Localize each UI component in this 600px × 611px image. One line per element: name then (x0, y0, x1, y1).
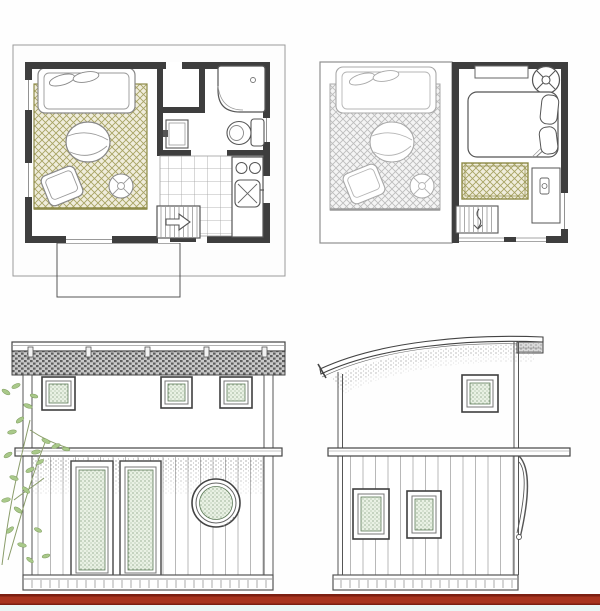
bathroom-wall (227, 150, 270, 156)
ground-strip (0, 605, 600, 611)
sink-basin (236, 163, 247, 174)
side-window-2 (407, 491, 441, 538)
daybed-sofa (38, 68, 135, 113)
ghost-sofa (336, 67, 436, 113)
staircase (456, 206, 498, 233)
faucet (163, 130, 168, 137)
tiny-house-plan-drawing (0, 0, 600, 611)
base-board (23, 575, 273, 590)
side-elevation (318, 336, 570, 590)
bathroom-wall (199, 62, 205, 113)
staircase (157, 206, 200, 238)
side-window-1 (353, 489, 389, 539)
side-stool (109, 174, 133, 198)
wardrobe-shelf (475, 66, 528, 78)
loft-bedroom (452, 62, 568, 243)
square-window-2 (161, 377, 192, 408)
roof-hatch (330, 345, 535, 394)
corner-post-right (264, 375, 273, 575)
pillow (539, 94, 559, 125)
ghost-living-room-below (320, 62, 452, 243)
drawing-canvas (0, 0, 600, 611)
closet-wall (157, 62, 163, 113)
ground-top-line (0, 594, 600, 597)
accent-rug (462, 163, 528, 199)
ghost-stool (410, 174, 434, 198)
toilet (227, 119, 264, 146)
cooktop (235, 180, 264, 207)
upper-window (462, 375, 498, 412)
first-floor-plan (13, 45, 285, 297)
base-board (333, 575, 518, 590)
front-elevation (1, 342, 285, 590)
desk-cabinet (532, 168, 560, 223)
round-coffee-table (66, 122, 110, 162)
ceiling-fan (533, 67, 560, 94)
ground-line (0, 597, 600, 604)
vanity-sink (163, 120, 188, 148)
pillow (538, 126, 558, 155)
floor-band (328, 448, 570, 456)
ghost-table (370, 122, 414, 162)
loft-floor-plan (320, 62, 568, 243)
bed (468, 92, 559, 157)
ground (0, 594, 600, 611)
corner-shower (218, 66, 265, 112)
porthole-window (192, 479, 240, 527)
square-window-3 (220, 377, 252, 408)
square-window-1 (42, 377, 75, 410)
closet-wall (157, 107, 205, 113)
shower-drain (251, 78, 256, 83)
ground-bottom-line (0, 604, 600, 606)
floor-band (15, 448, 282, 456)
glazed-door-right (120, 461, 161, 579)
glazed-door-left (71, 461, 113, 579)
sink-basin (250, 163, 261, 174)
